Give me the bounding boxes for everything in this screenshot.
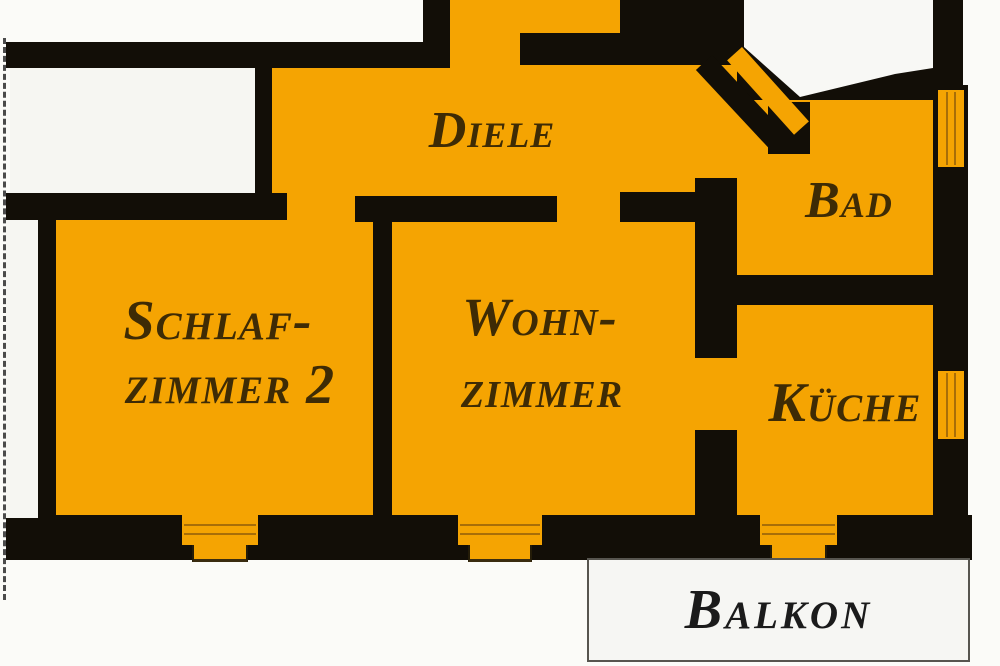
window-glazing-line [954, 92, 956, 165]
wall-diele-top [520, 33, 703, 65]
diele-label: Diele [429, 105, 556, 157]
wall-wohn-kueche-upper [695, 178, 737, 358]
wall-entrance-left [695, 0, 737, 65]
schlafzimmer-label-line1: Schlaf- [124, 293, 313, 349]
window-bad [938, 90, 964, 167]
window-wohnzimmer-sill [468, 545, 532, 562]
wall-left-exterior [38, 220, 56, 520]
window-kueche [938, 371, 964, 439]
bad-label: Bad [805, 175, 893, 227]
window-schlafzimmer-sill [192, 545, 248, 562]
window-glazing-line [954, 373, 956, 437]
outside-strip-left [6, 220, 38, 518]
window-glazing-line [946, 92, 948, 165]
kueche-label: Küche [769, 375, 922, 431]
window-schlafzimmer [182, 515, 258, 545]
window-glazing-line [460, 524, 540, 526]
balcony-door-kueche [760, 515, 837, 545]
balkon-label: Balkon [685, 582, 873, 638]
window-glazing-line [460, 533, 540, 535]
window-glazing-line [762, 533, 835, 535]
window-glazing-line [762, 524, 835, 526]
wall-diele-top-edge [620, 0, 703, 33]
balcony: Balkon [587, 558, 970, 662]
wall-neighbor-right [255, 62, 272, 193]
wall-top-stub [423, 0, 450, 42]
wall-above-wohnzimmer-right [620, 192, 703, 222]
wall-bad-bottom [737, 275, 963, 305]
window-glazing-line [946, 373, 948, 437]
wall-top-left [6, 42, 450, 68]
property-boundary-dashed-line [3, 38, 6, 600]
schlafzimmer-label-line2: zimmer 2 [125, 357, 335, 413]
wall-above-schlafzimmer [6, 193, 287, 220]
wohnzimmer-label-line1: Wohn- [462, 290, 617, 344]
wall-schlaf-wohn-divider [373, 220, 392, 520]
wohnzimmer-label-line2: zimmer [461, 362, 623, 416]
wall-wohn-kueche-lower [695, 430, 737, 520]
wall-above-wohnzimmer-left [355, 196, 557, 222]
window-glazing-line [184, 524, 256, 526]
window-wohnzimmer [458, 515, 542, 545]
window-glazing-line [184, 533, 256, 535]
adjacent-room [10, 68, 255, 193]
floor-plan: Balkon Diele Bad Schlaf- zimmer 2 Wohn- … [0, 0, 1000, 666]
